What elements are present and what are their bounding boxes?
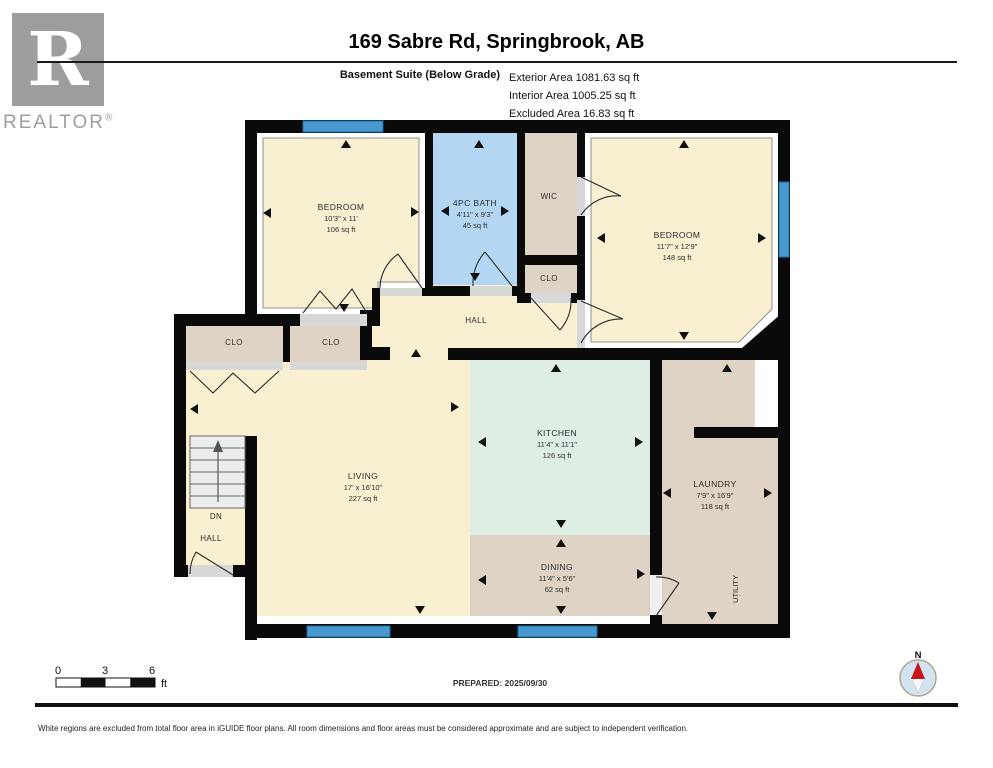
threshold <box>577 177 585 216</box>
excluded-region <box>755 360 778 427</box>
room-name: LAUNDRY <box>693 479 736 489</box>
wall <box>174 565 188 577</box>
room-dims: 10'3" x 11' <box>324 214 358 223</box>
threshold <box>380 288 422 296</box>
threshold <box>577 300 585 348</box>
room-fill-bedroom-1 <box>263 138 419 308</box>
room-area: 62 sq ft <box>545 585 571 594</box>
window <box>518 626 597 637</box>
room-name: BEDROOM <box>654 230 701 240</box>
wall <box>425 132 433 296</box>
compass-icon: N <box>900 650 936 696</box>
scale-label-0: 0 <box>55 665 61 677</box>
scale-bar-segment <box>130 678 155 687</box>
scale-bar-segment <box>81 678 106 687</box>
footer-divider <box>35 703 958 707</box>
wall <box>360 347 390 360</box>
room-dims: 11'7" x 12'9" <box>657 242 698 251</box>
wall <box>174 314 186 577</box>
room-label-kitchen: KITCHEN 11'4" x 11'1" 126 sq ft <box>537 428 577 460</box>
room-name: KITCHEN <box>537 428 577 438</box>
room-dims: 11'4" x 5'6" <box>539 574 576 583</box>
room-area: 148 sq ft <box>663 253 693 262</box>
room-label-clo-wic: CLO <box>540 274 558 283</box>
wall <box>517 132 525 296</box>
threshold <box>290 362 367 370</box>
room-dims: 17' x 16'10" <box>344 483 383 492</box>
stairs-down-label: DN <box>210 512 222 521</box>
floor-plan-page: R REALTOR® 169 Sabre Rd, Springbrook, AB… <box>0 0 993 768</box>
room-name: DINING <box>541 562 573 572</box>
window <box>303 121 383 132</box>
threshold <box>470 286 512 296</box>
wall <box>694 427 790 438</box>
stairs <box>190 436 245 508</box>
room-label-utility: UTILITY <box>731 575 740 603</box>
room-area: 118 sq ft <box>701 502 730 511</box>
threshold <box>650 575 662 615</box>
room-name: BEDROOM <box>318 202 365 212</box>
plan-notch <box>160 577 245 652</box>
window <box>307 626 390 637</box>
room-area: 106 sq ft <box>327 225 357 234</box>
wall <box>372 288 380 326</box>
room-dims: 11'4" x 11'1" <box>537 440 577 449</box>
room-area: 227 sq ft <box>349 494 379 503</box>
prepared-date: PREPARED: 2025/09/30 <box>453 678 548 688</box>
room-label-clo-2: CLO <box>322 338 340 347</box>
threshold <box>186 362 283 370</box>
wall <box>650 348 662 575</box>
room-dims: 4'11" x 9'3" <box>457 210 494 219</box>
wall <box>245 436 257 640</box>
threshold <box>300 314 367 326</box>
room-name: 4PC BATH <box>453 198 497 208</box>
room-label-hall-lower: HALL <box>200 534 222 543</box>
wall <box>433 286 470 296</box>
wall <box>245 120 257 326</box>
wall <box>283 326 290 362</box>
wall <box>577 132 585 177</box>
room-label-living: LIVING 17' x 16'10" 227 sq ft <box>344 471 383 503</box>
wall <box>233 565 245 577</box>
floor-plan-drawing: BEDROOM 10'3" x 11' 106 sq ft 4PC BATH 4… <box>0 0 993 768</box>
room-label-hall: HALL <box>465 316 487 325</box>
room-fill-bedroom-2 <box>591 138 772 342</box>
room-label-clo-1: CLO <box>225 338 243 347</box>
threshold <box>531 293 571 303</box>
room-name: LIVING <box>348 471 378 481</box>
room-area: 45 sq ft <box>463 221 489 230</box>
scale-bar: 0 3 6 ft <box>55 665 167 690</box>
scale-label-6: 6 <box>149 665 155 677</box>
room-dims: 7'9" x 16'9" <box>697 491 734 500</box>
disclaimer-text: White regions are excluded from total fl… <box>38 724 958 733</box>
wall <box>448 348 790 360</box>
wall <box>517 255 585 265</box>
scale-unit-label: ft <box>161 678 167 690</box>
window <box>779 182 789 257</box>
scale-label-3: 3 <box>102 665 108 677</box>
wall <box>517 293 531 303</box>
wall <box>650 615 662 638</box>
room-label-wic: WIC <box>541 192 558 201</box>
wall <box>174 314 257 326</box>
wall <box>577 216 585 300</box>
room-area: 126 sq ft <box>543 451 573 460</box>
